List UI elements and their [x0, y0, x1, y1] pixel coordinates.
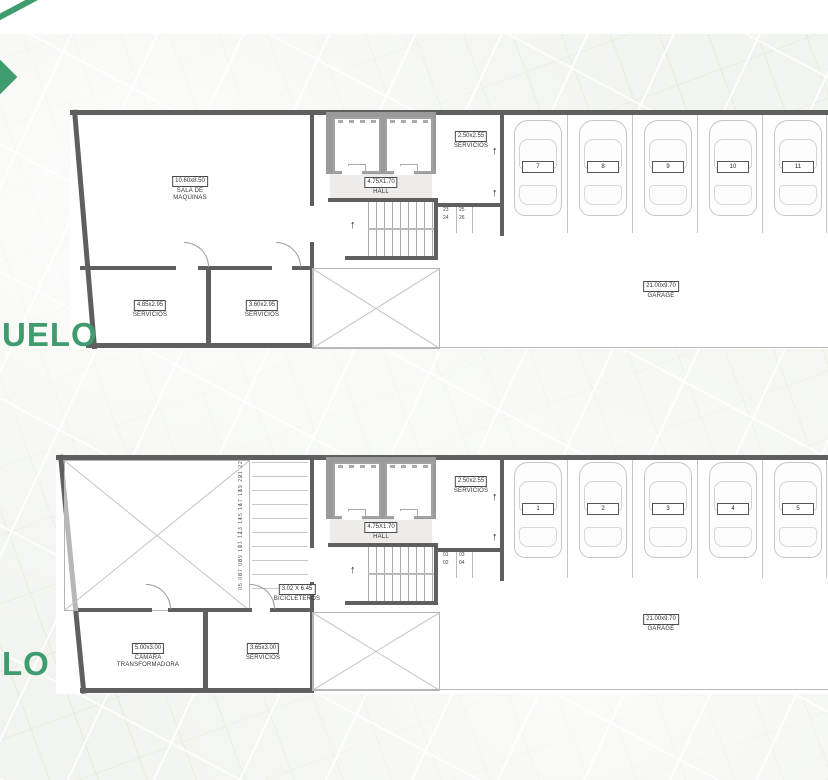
- car-top-view: 4: [709, 462, 757, 558]
- wall: [345, 256, 438, 260]
- car-top-view: 10: [709, 120, 757, 216]
- slot-divider: [456, 552, 457, 578]
- bike-slot-number: 05 06: [238, 572, 244, 590]
- room-label-sala-maquinas: 10.60x8.50 SALA DE MAQUINAS: [172, 176, 208, 202]
- slot-number: 04: [459, 560, 465, 567]
- room-label-hall: 4.75X1.70 HALL: [364, 522, 397, 541]
- slot-number: 24: [443, 215, 449, 222]
- slot-divider: [456, 207, 457, 233]
- elevator-shaft: [385, 462, 433, 518]
- parking-number: 1: [522, 503, 554, 515]
- wall: [80, 266, 176, 270]
- parking-bay-divider: [762, 460, 763, 578]
- wall: [500, 459, 504, 581]
- room-label-servicios: 3.65x3.00 SERVICIOS: [246, 643, 280, 662]
- room-dimensions: 21.00x9.70: [643, 614, 679, 625]
- ramp-cross-area: [312, 268, 440, 349]
- circulation-arrow-icon: ↑: [492, 188, 498, 199]
- parking-bay-divider: [632, 115, 633, 233]
- wall: [345, 601, 438, 605]
- car-top-view: 5: [774, 462, 822, 558]
- garage-edge-line: [312, 689, 828, 690]
- parking-number: 11: [782, 161, 814, 173]
- parking-bay-divider: [762, 115, 763, 233]
- room-name: GARAGE: [648, 293, 675, 300]
- room-label-garage: 21.00x9.70 GARAGE: [643, 281, 679, 300]
- elevator-door-gap: [342, 511, 362, 520]
- room-name: SERVICIOS: [133, 312, 167, 319]
- room-label-servicios: 2.50x2.55 SERVICIOS: [454, 131, 488, 150]
- parking-number: 8: [587, 161, 619, 173]
- elevator-door-gap: [394, 166, 414, 175]
- room-name: SERVICIOS: [246, 655, 280, 662]
- parking-bay-divider: [567, 460, 568, 578]
- car-top-view: 3: [644, 462, 692, 558]
- room-dimensions: 4.85x2.95: [134, 300, 166, 311]
- wall: [80, 688, 314, 693]
- room-dimensions: 3.02 X 6.45: [279, 584, 316, 595]
- elevator-door-gap: [342, 166, 362, 175]
- bike-racks: [252, 462, 308, 589]
- room-dimensions: 3.60x2.95: [246, 300, 278, 311]
- room-label-camara: 5.00x3.00 CAMARA TRANSFORMADORA: [117, 643, 179, 669]
- elevator-shaft: [385, 117, 433, 173]
- parking-bay-divider: [697, 115, 698, 233]
- wall: [310, 114, 314, 206]
- room-name: HALL: [373, 534, 389, 541]
- parking-bay-divider: [632, 460, 633, 578]
- wall: [70, 110, 828, 115]
- room-name: GARAGE: [648, 626, 675, 633]
- elevator-door-gap: [394, 511, 414, 520]
- room-name: SERVICIOS: [245, 312, 279, 319]
- room-label-servicios: 4.85x2.95 SERVICIOS: [133, 300, 167, 319]
- car-top-view: 2: [579, 462, 627, 558]
- stair-landing-line: [368, 228, 434, 230]
- circulation-arrow-icon: ↑: [492, 492, 498, 503]
- wall: [168, 608, 252, 612]
- slot-number: 25: [459, 207, 465, 214]
- room-dimensions: 2.50x2.55: [455, 131, 487, 142]
- elevator-shaft: [333, 462, 381, 518]
- room-dimensions: 21.00x9.70: [643, 281, 679, 292]
- garage-edge-line: [312, 347, 828, 348]
- room-dimensions: 10.60x8.50: [172, 176, 208, 187]
- room-name: SERVICIOS: [454, 488, 488, 495]
- parking-bay-divider: [567, 115, 568, 233]
- room-label-hall: 4.75X1.70 HALL: [364, 177, 397, 196]
- parking-number: 3: [652, 503, 684, 515]
- stair-direction-arrow-icon: ↑: [350, 220, 356, 231]
- room-label-servicios: 3.60x2.95 SERVICIOS: [245, 300, 279, 319]
- parking-number: 9: [652, 161, 684, 173]
- slot-divider: [472, 207, 473, 233]
- circulation-arrow-icon: ↑: [492, 532, 498, 543]
- leaf-tip-decoration: [0, 59, 17, 96]
- ramp-cross-area: [312, 612, 440, 691]
- parking-number: 4: [717, 503, 749, 515]
- slot-divider: [472, 552, 473, 578]
- wall: [86, 343, 314, 348]
- wall: [500, 114, 504, 236]
- circulation-arrow-icon: ↑: [492, 146, 498, 157]
- parking-number: 7: [522, 161, 554, 173]
- wall: [270, 608, 312, 612]
- floorplan-sheet: UELO LO ↑ 23 2: [0, 0, 828, 780]
- wall: [206, 268, 211, 345]
- room-dimensions: 3.65x3.00: [247, 643, 279, 654]
- slot-number: 26: [459, 215, 465, 222]
- wall: [310, 457, 314, 548]
- parking-number: 5: [782, 503, 814, 515]
- room-label-garage: 21.00x9.70 GARAGE: [643, 614, 679, 633]
- room-label-servicios: 2.50x2.55 SERVICIOS: [454, 476, 488, 495]
- wall: [203, 610, 208, 690]
- room-dimensions: 2.50x2.55: [455, 476, 487, 487]
- car-top-view: 1: [514, 462, 562, 558]
- wall: [434, 543, 438, 605]
- wall: [78, 608, 152, 612]
- slot-number: 23: [443, 207, 449, 214]
- car-top-view: 9: [644, 120, 692, 216]
- room-dimensions: 5.00x3.00: [132, 643, 164, 654]
- stair-direction-arrow-icon: ↑: [350, 565, 356, 576]
- parking-bay-divider: [697, 460, 698, 578]
- car-top-view: 7: [514, 120, 562, 216]
- slot-number: 01: [443, 552, 449, 559]
- slot-number: 02: [443, 560, 449, 567]
- parking-number: 2: [587, 503, 619, 515]
- room-dimensions: 4.75X1.70: [364, 522, 397, 533]
- car-top-view: 11: [774, 120, 822, 216]
- room-label-bicicleteros: 3.02 X 6.45 BICICLETEROS: [274, 584, 320, 603]
- car-top-view: 8: [579, 120, 627, 216]
- room-name: SALA DE MAQUINAS: [173, 188, 207, 202]
- room-dimensions: 4.75X1.70: [364, 177, 397, 188]
- parking-bay-divider: [826, 115, 827, 233]
- level-label-upper: UELO: [2, 316, 98, 354]
- slot-number: 03: [459, 552, 465, 559]
- top-white-band: [0, 0, 828, 34]
- parking-bay-divider: [826, 460, 827, 578]
- level-label-lower: LO: [2, 645, 50, 683]
- room-name: CAMARA TRANSFORMADORA: [117, 655, 179, 669]
- elevator-shaft: [333, 117, 381, 173]
- room-name: HALL: [373, 189, 389, 196]
- stair-landing-line: [368, 573, 434, 575]
- wall: [434, 198, 438, 260]
- room-name: SERVICIOS: [454, 143, 488, 150]
- room-name: BICICLETEROS: [274, 596, 320, 603]
- parking-number: 10: [717, 161, 749, 173]
